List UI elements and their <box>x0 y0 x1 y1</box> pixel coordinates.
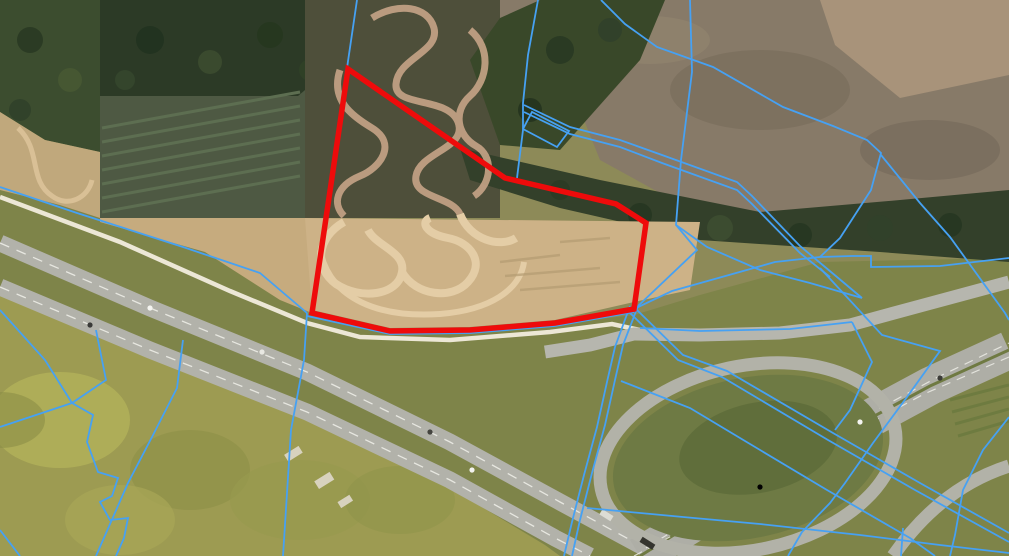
tree <box>707 215 733 241</box>
tree <box>598 18 622 42</box>
tree <box>867 215 893 241</box>
tree <box>257 22 283 48</box>
tree <box>58 68 82 92</box>
tree <box>546 36 574 64</box>
map-canvas[interactable] <box>0 0 1009 556</box>
tree <box>9 99 31 121</box>
tree <box>17 27 43 53</box>
tree <box>136 26 164 54</box>
tree <box>198 50 222 74</box>
tree <box>115 70 135 90</box>
field-texture <box>65 485 175 555</box>
tree <box>938 213 962 237</box>
field-smudge <box>860 120 1000 180</box>
map-viewport[interactable] <box>0 0 1009 556</box>
